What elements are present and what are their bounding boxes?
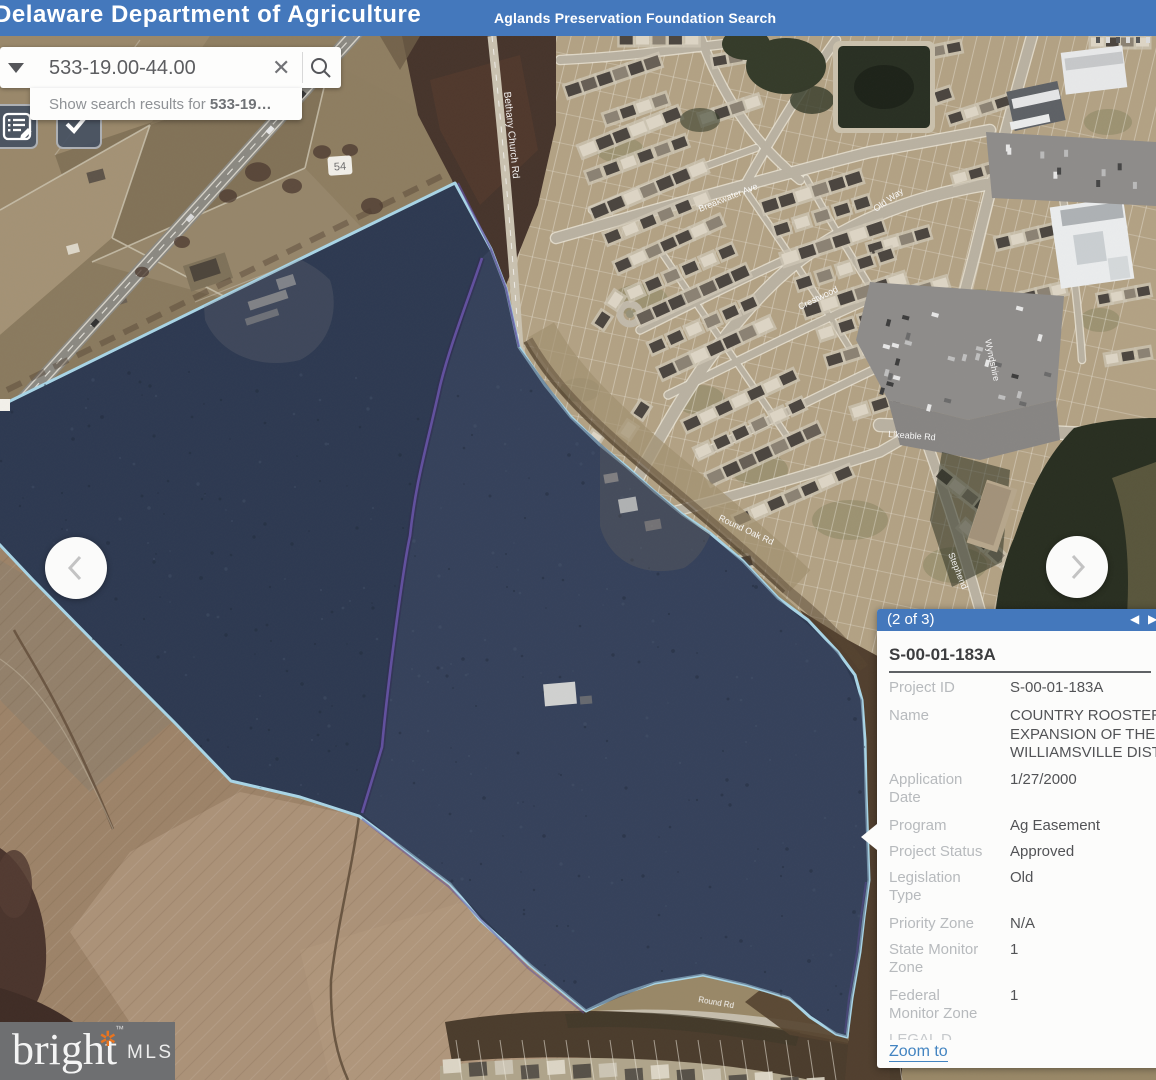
svg-text:54: 54 [334,161,347,174]
